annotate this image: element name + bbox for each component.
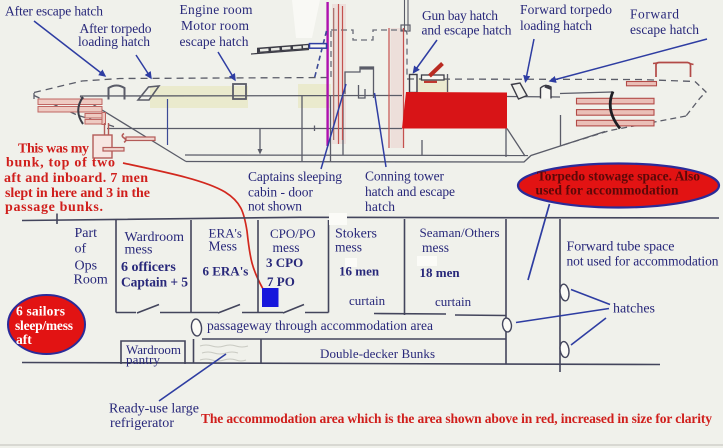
svg-text:mess: mess: [335, 240, 362, 255]
svg-text:Captains sleeping: Captains sleeping: [248, 169, 342, 184]
svg-text:aft: aft: [16, 332, 32, 347]
svg-text:After escape hatch: After escape hatch: [5, 4, 103, 19]
svg-text:sleep/mess: sleep/mess: [15, 318, 73, 333]
svg-text:bunk, top of two: bunk, top of two: [6, 156, 115, 171]
svg-text:Captain + 5: Captain + 5: [121, 275, 188, 290]
svg-text:Torpedo stowage space. Also: Torpedo stowage space. Also: [537, 169, 700, 184]
svg-text:18 men: 18 men: [420, 265, 461, 280]
svg-text:slept in here and 3 in the: slept in here and 3 in the: [5, 186, 150, 201]
svg-text:hatch and escape: hatch and escape: [365, 184, 455, 199]
svg-text:CPO/PO: CPO/PO: [270, 226, 316, 241]
svg-text:Room: Room: [74, 273, 108, 288]
svg-text:Ops: Ops: [75, 259, 98, 274]
svg-text:Conning tower: Conning tower: [365, 169, 445, 184]
svg-text:mess: mess: [125, 243, 153, 258]
svg-text:loading hatch: loading hatch: [520, 18, 592, 33]
svg-text:curtain: curtain: [349, 293, 386, 308]
svg-text:3 CPO: 3 CPO: [266, 255, 303, 270]
svg-text:escape hatch: escape hatch: [630, 22, 699, 37]
svg-text:Forward torpedo: Forward torpedo: [520, 2, 612, 17]
svg-text:and escape hatch: and escape hatch: [422, 23, 512, 38]
svg-text:Mess: Mess: [209, 239, 238, 254]
svg-text:mess: mess: [422, 240, 449, 255]
svg-text:aft and inboard. 7 men: aft and inboard. 7 men: [4, 171, 148, 186]
svg-text:6 sailors: 6 sailors: [16, 304, 65, 319]
svg-text:loading hatch: loading hatch: [78, 34, 150, 49]
svg-text:not used for accommodation: not used for accommodation: [567, 254, 719, 269]
svg-text:curtain: curtain: [435, 294, 472, 309]
svg-text:Forward: Forward: [630, 7, 679, 22]
svg-text:hatches: hatches: [613, 302, 655, 317]
svg-text:This was my: This was my: [18, 142, 89, 157]
svg-text:6 ERA's: 6 ERA's: [203, 264, 249, 279]
svg-text:Ready-use large: Ready-use large: [109, 402, 199, 417]
svg-text:Gun bay hatch: Gun bay hatch: [422, 8, 498, 23]
svg-text:7 PO: 7 PO: [267, 274, 295, 289]
svg-text:Double-decker Bunks: Double-decker Bunks: [320, 346, 435, 361]
svg-text:of: of: [75, 242, 87, 257]
svg-text:refrigerator: refrigerator: [110, 416, 174, 431]
svg-text:mess: mess: [273, 240, 300, 255]
svg-text:pantry: pantry: [126, 352, 161, 367]
svg-text:hatch: hatch: [365, 199, 395, 214]
svg-text:escape hatch: escape hatch: [180, 34, 249, 49]
svg-text:used for accommodation: used for accommodation: [536, 183, 679, 198]
svg-text:6 officers: 6 officers: [121, 260, 176, 275]
svg-text:passage bunks.: passage bunks.: [5, 200, 103, 215]
svg-text:Part: Part: [75, 226, 98, 241]
svg-text:Forward tube space: Forward tube space: [567, 240, 675, 255]
svg-text:cabin - door: cabin - door: [248, 185, 314, 200]
svg-text:16 men: 16 men: [339, 264, 380, 279]
svg-text:not shown: not shown: [248, 199, 302, 214]
svg-text:passageway through accommodati: passageway through accommodation area: [207, 318, 433, 333]
svg-text:Motor room: Motor room: [181, 18, 249, 33]
svg-text:Engine room: Engine room: [180, 2, 253, 17]
svg-text:Seaman/Others: Seaman/Others: [420, 225, 500, 240]
svg-text:The accommodation area which i: The accommodation area which is the area…: [201, 411, 712, 426]
